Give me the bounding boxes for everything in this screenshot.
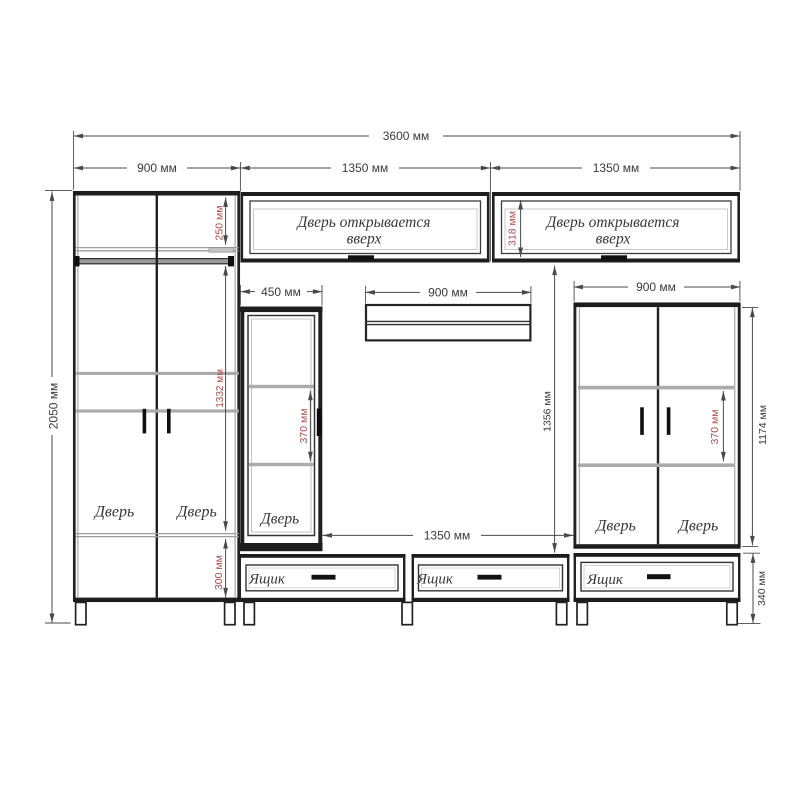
svg-text:900 мм: 900 мм bbox=[636, 280, 676, 294]
svg-text:1174 мм: 1174 мм bbox=[757, 405, 769, 445]
svg-text:900 мм: 900 мм bbox=[428, 286, 468, 300]
svg-text:1332 мм: 1332 мм bbox=[215, 369, 226, 408]
svg-text:1350 мм: 1350 мм bbox=[342, 161, 389, 175]
svg-text:2050 мм: 2050 мм bbox=[46, 383, 60, 430]
svg-text:900 мм: 900 мм bbox=[137, 161, 177, 175]
svg-text:250 мм: 250 мм bbox=[213, 206, 225, 241]
svg-text:Дверь: Дверь bbox=[93, 504, 135, 521]
svg-text:Ящик: Ящик bbox=[586, 572, 624, 588]
svg-text:вверх: вверх bbox=[596, 231, 631, 248]
svg-text:Дверь открывается: Дверь открывается bbox=[296, 214, 431, 231]
svg-text:450 мм: 450 мм bbox=[261, 285, 301, 299]
svg-text:вверх: вверх bbox=[347, 231, 382, 248]
svg-text:318 мм: 318 мм bbox=[506, 211, 518, 246]
svg-text:370 мм: 370 мм bbox=[709, 410, 721, 445]
svg-text:Дверь: Дверь bbox=[677, 518, 719, 535]
svg-text:1356 мм: 1356 мм bbox=[542, 391, 554, 432]
svg-text:Дверь: Дверь bbox=[594, 518, 636, 535]
svg-text:Ящик: Ящик bbox=[416, 572, 454, 588]
svg-text:1350 мм: 1350 мм bbox=[424, 529, 471, 543]
svg-text:370 мм: 370 мм bbox=[298, 409, 310, 444]
svg-text:Дверь: Дверь bbox=[175, 504, 217, 521]
svg-text:3600 мм: 3600 мм bbox=[383, 129, 430, 143]
svg-text:Дверь открывается: Дверь открывается bbox=[545, 214, 680, 231]
svg-text:300 мм: 300 мм bbox=[213, 555, 225, 590]
svg-text:340 мм: 340 мм bbox=[756, 571, 768, 606]
svg-text:Ящик: Ящик bbox=[248, 572, 286, 588]
svg-text:Дверь: Дверь bbox=[259, 511, 299, 528]
svg-text:1350 мм: 1350 мм bbox=[593, 161, 640, 175]
